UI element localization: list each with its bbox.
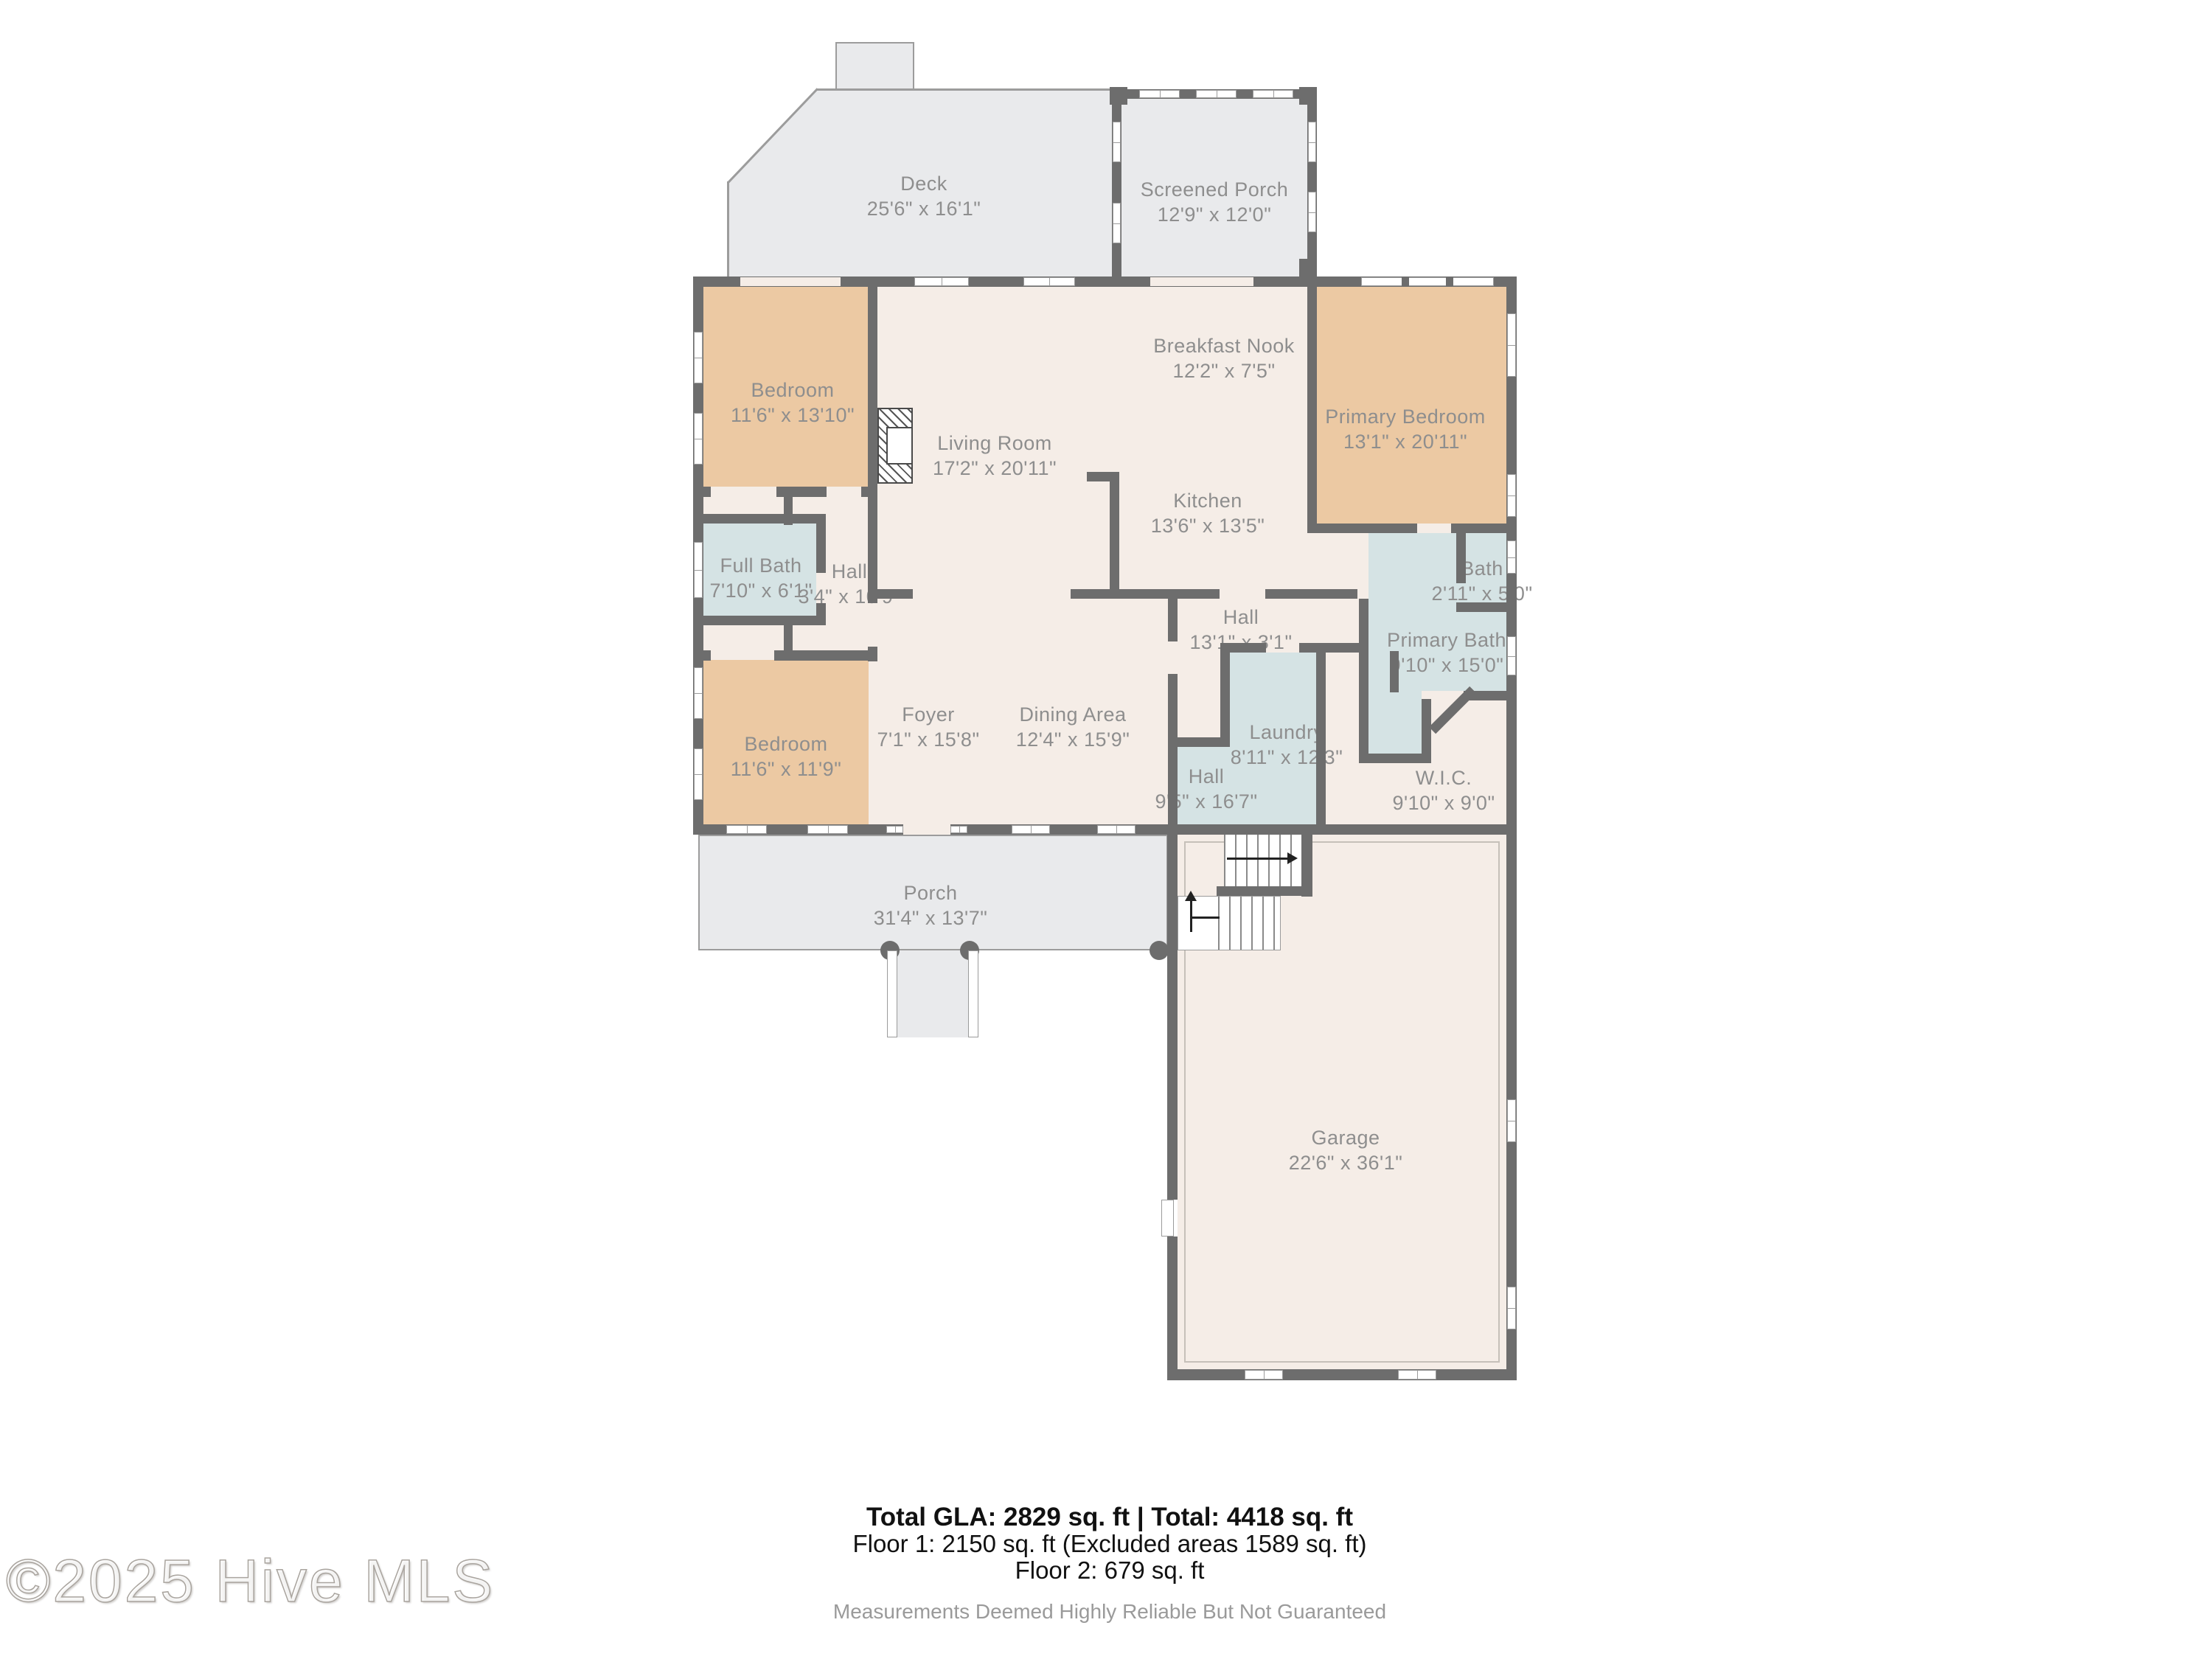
window — [1097, 825, 1135, 834]
window — [1507, 474, 1516, 517]
wall-mid — [1071, 589, 1220, 599]
porch-post — [1299, 259, 1317, 276]
room-dims: 12'2" x 7'5" — [1153, 358, 1295, 383]
screened-porch-wall-left — [1112, 89, 1121, 277]
garage-window — [1507, 1099, 1516, 1142]
screen-panel — [1253, 90, 1293, 98]
room-label-garage: Garage 22'6" x 36'1" — [1289, 1125, 1403, 1175]
garage-window — [1245, 1370, 1283, 1380]
window — [914, 277, 969, 286]
door-opening-foyer — [903, 824, 950, 835]
screened-porch-wall-right — [1307, 89, 1317, 277]
primary-bath-area-lower — [1368, 691, 1422, 754]
garage-side-door — [1161, 1200, 1174, 1237]
door-jamb — [950, 826, 967, 833]
window — [1023, 277, 1075, 286]
room-name: Living Room — [933, 431, 1057, 456]
room-dims: 7'10" x 6'1" — [709, 578, 812, 603]
stairs-down-treads — [1218, 897, 1280, 950]
stairs-up-arrowhead — [1287, 852, 1298, 864]
wall-wic-vertical — [1422, 699, 1431, 763]
window — [807, 825, 848, 834]
wall-kitchen-stub — [1110, 472, 1119, 599]
wall-fullbath-right — [816, 514, 826, 573]
wall-primary-bedroom-left — [1307, 286, 1317, 533]
stairs-down-arrowhead — [1185, 891, 1197, 901]
porch-post — [1110, 87, 1127, 105]
wall-primary-bath-left — [1359, 599, 1368, 763]
porch-post — [1299, 87, 1317, 105]
garage-window — [1507, 1287, 1516, 1329]
room-name: Hall — [798, 559, 900, 584]
floor1-line: Floor 1: 2150 sq. ft (Excluded areas 158… — [667, 1531, 1552, 1557]
room-dims: 7'1" x 15'8" — [877, 727, 979, 752]
room-label-foyer: Foyer 7'1" x 15'8" — [877, 702, 979, 752]
screen-panel — [1113, 203, 1121, 243]
garage-window — [1398, 1370, 1436, 1380]
window-triple — [1361, 277, 1494, 286]
door-opening-screened-porch — [1150, 277, 1253, 286]
room-dims: 22'6" x 36'1" — [1289, 1150, 1403, 1175]
room-label-kitchen: Kitchen 13'6" x 13'5" — [1151, 488, 1265, 538]
room-dims: 9'10" x 15'0" — [1387, 653, 1506, 678]
room-label-full-bath: Full Bath 7'10" x 6'1" — [709, 553, 812, 603]
window — [1012, 825, 1050, 834]
walkway-rail-left — [887, 950, 897, 1037]
window — [694, 413, 703, 465]
room-label-bedroom-top: Bedroom 11'6" x 13'10" — [731, 378, 855, 428]
wall-laundry-jog — [1178, 737, 1230, 747]
wall-hall-bottom — [1220, 643, 1266, 653]
room-label-hall-west: Hall 3'4" x 10'9" — [798, 559, 900, 609]
window — [694, 748, 703, 800]
room-dims: 13'6" x 13'5" — [1151, 513, 1265, 538]
room-label-primary-bath: Primary Bath 9'10" x 15'0" — [1387, 627, 1506, 678]
room-name: Primary Bedroom — [1325, 404, 1486, 429]
room-name: W.I.C. — [1392, 765, 1495, 790]
garage-wall-bottom — [1167, 1369, 1517, 1380]
screen-panel — [1139, 90, 1180, 98]
garage-wall-left — [1167, 1237, 1178, 1370]
window — [694, 542, 703, 598]
window-mullion — [1402, 276, 1409, 287]
room-label-bath: Bath 2'11" x 5'0" — [1431, 556, 1532, 606]
door-opening-deck — [740, 277, 841, 286]
room-label-living-room: Living Room 17'2" x 20'11" — [933, 431, 1057, 481]
disclaimer-line: Measurements Deemed Highly Reliable But … — [667, 1600, 1552, 1624]
wall-mid — [1265, 589, 1357, 599]
wall-living-left — [868, 286, 877, 603]
room-label-primary-bedroom: Primary Bedroom 13'1" x 20'11" — [1325, 404, 1486, 454]
room-dims: 12'9" x 12'0" — [1141, 202, 1289, 227]
window — [726, 825, 767, 834]
wall-primary-bedroom-bottom — [1451, 524, 1507, 533]
room-label-bedroom-bottom: Bedroom 11'6" x 11'9" — [731, 731, 842, 782]
room-label-screened-porch: Screened Porch 12'9" x 12'0" — [1141, 177, 1289, 227]
room-name: Laundry — [1231, 720, 1343, 745]
window — [1507, 540, 1516, 574]
walkway-rail-right — [968, 950, 978, 1037]
deck-chimney-bump — [835, 42, 914, 91]
stairs-up-arrow — [1227, 858, 1289, 860]
room-dims: 25'6" x 16'1" — [867, 196, 981, 221]
screen-panel — [1196, 90, 1237, 98]
room-label-deck: Deck 25'6" x 16'1" — [867, 171, 981, 221]
wall — [702, 487, 711, 497]
wall-laundry-left — [1220, 653, 1230, 740]
wall — [702, 650, 711, 661]
wall-fullbath-bottom — [702, 616, 826, 625]
room-dims: 11'6" x 11'9" — [731, 757, 842, 782]
wall-hall-bottom — [1299, 643, 1359, 653]
room-name: Breakfast Nook — [1153, 333, 1295, 358]
window — [1507, 313, 1516, 377]
room-name: Bedroom — [731, 731, 842, 757]
window — [694, 332, 703, 383]
floorplan-canvas: Deck 25'6" x 16'1" Screened Porch 12'9" … — [0, 0, 2212, 1659]
screen-panel — [1113, 122, 1121, 162]
room-dims: 13'1" x 20'11" — [1325, 429, 1486, 454]
room-label-breakfast-nook: Breakfast Nook 12'2" x 7'5" — [1153, 333, 1295, 383]
wall-primary-bedroom-bottom — [1317, 524, 1417, 533]
fireplace-firebox — [886, 427, 913, 465]
room-name: Bedroom — [731, 378, 855, 403]
area-summary: Total GLA: 2829 sq. ft | Total: 4418 sq.… — [667, 1504, 1552, 1624]
room-name: Kitchen — [1151, 488, 1265, 513]
wall-mid — [874, 589, 913, 599]
room-name: Porch — [874, 880, 988, 905]
wall-hall-divider — [1168, 674, 1178, 835]
room-label-dining-area: Dining Area 12'4" x 15'9" — [1016, 702, 1130, 752]
wall-kitchen-stub-tick — [1087, 472, 1110, 481]
room-dims: 17'2" x 20'11" — [933, 456, 1057, 481]
window — [694, 667, 703, 719]
garage-wall-left — [1167, 835, 1178, 1200]
mls-watermark: ©2025 Hive MLS — [6, 1547, 495, 1616]
room-name: Deck — [867, 171, 981, 196]
window-mullion — [1446, 276, 1453, 287]
wall-bath-bottom — [1456, 602, 1517, 612]
deck-edge-top — [816, 88, 1113, 91]
total-gla-line: Total GLA: 2829 sq. ft | Total: 4418 sq.… — [667, 1504, 1552, 1531]
walkway-area — [887, 950, 978, 1037]
screen-panel — [1308, 192, 1316, 232]
room-name: Foyer — [877, 702, 979, 727]
floor2-line: Floor 2: 679 sq. ft — [667, 1557, 1552, 1584]
wall-fullbath-top — [702, 514, 826, 524]
deck-area-angled — [728, 89, 817, 277]
room-name: Primary Bath — [1387, 627, 1506, 653]
room-dims: 9'10" x 9'0" — [1392, 790, 1495, 815]
wall-laundry-right — [1316, 651, 1326, 835]
room-name: Hall — [1189, 605, 1292, 630]
room-label-laundry: Laundry 8'11" x 12'3" — [1231, 720, 1343, 770]
room-label-porch: Porch 31'4" x 13'7" — [874, 880, 988, 931]
room-name: Screened Porch — [1141, 177, 1289, 202]
room-label-wic: W.I.C. 9'10" x 9'0" — [1392, 765, 1495, 815]
wall-vestibule-stub — [1390, 651, 1399, 692]
room-dims: 31'4" x 13'7" — [874, 905, 988, 931]
room-name: Bath — [1431, 556, 1532, 581]
room-name: Dining Area — [1016, 702, 1130, 727]
room-dims: 12'4" x 15'9" — [1016, 727, 1130, 752]
deck-edge-left — [727, 181, 729, 277]
wall-stairs-bottom — [1217, 886, 1312, 896]
screen-panel — [1308, 122, 1316, 162]
stairs-down-arrow-h — [1190, 917, 1220, 919]
room-name: Full Bath — [709, 553, 812, 578]
room-dims: 11'6" x 13'10" — [731, 403, 855, 428]
room-name: Garage — [1289, 1125, 1403, 1150]
wall-hall-divider — [1168, 599, 1178, 641]
wall — [784, 619, 793, 661]
porch-column — [1150, 941, 1169, 960]
door-jamb — [886, 826, 903, 833]
wall-wic-top — [1359, 754, 1430, 763]
window — [1507, 636, 1516, 675]
wall-bath-left — [1456, 533, 1466, 583]
